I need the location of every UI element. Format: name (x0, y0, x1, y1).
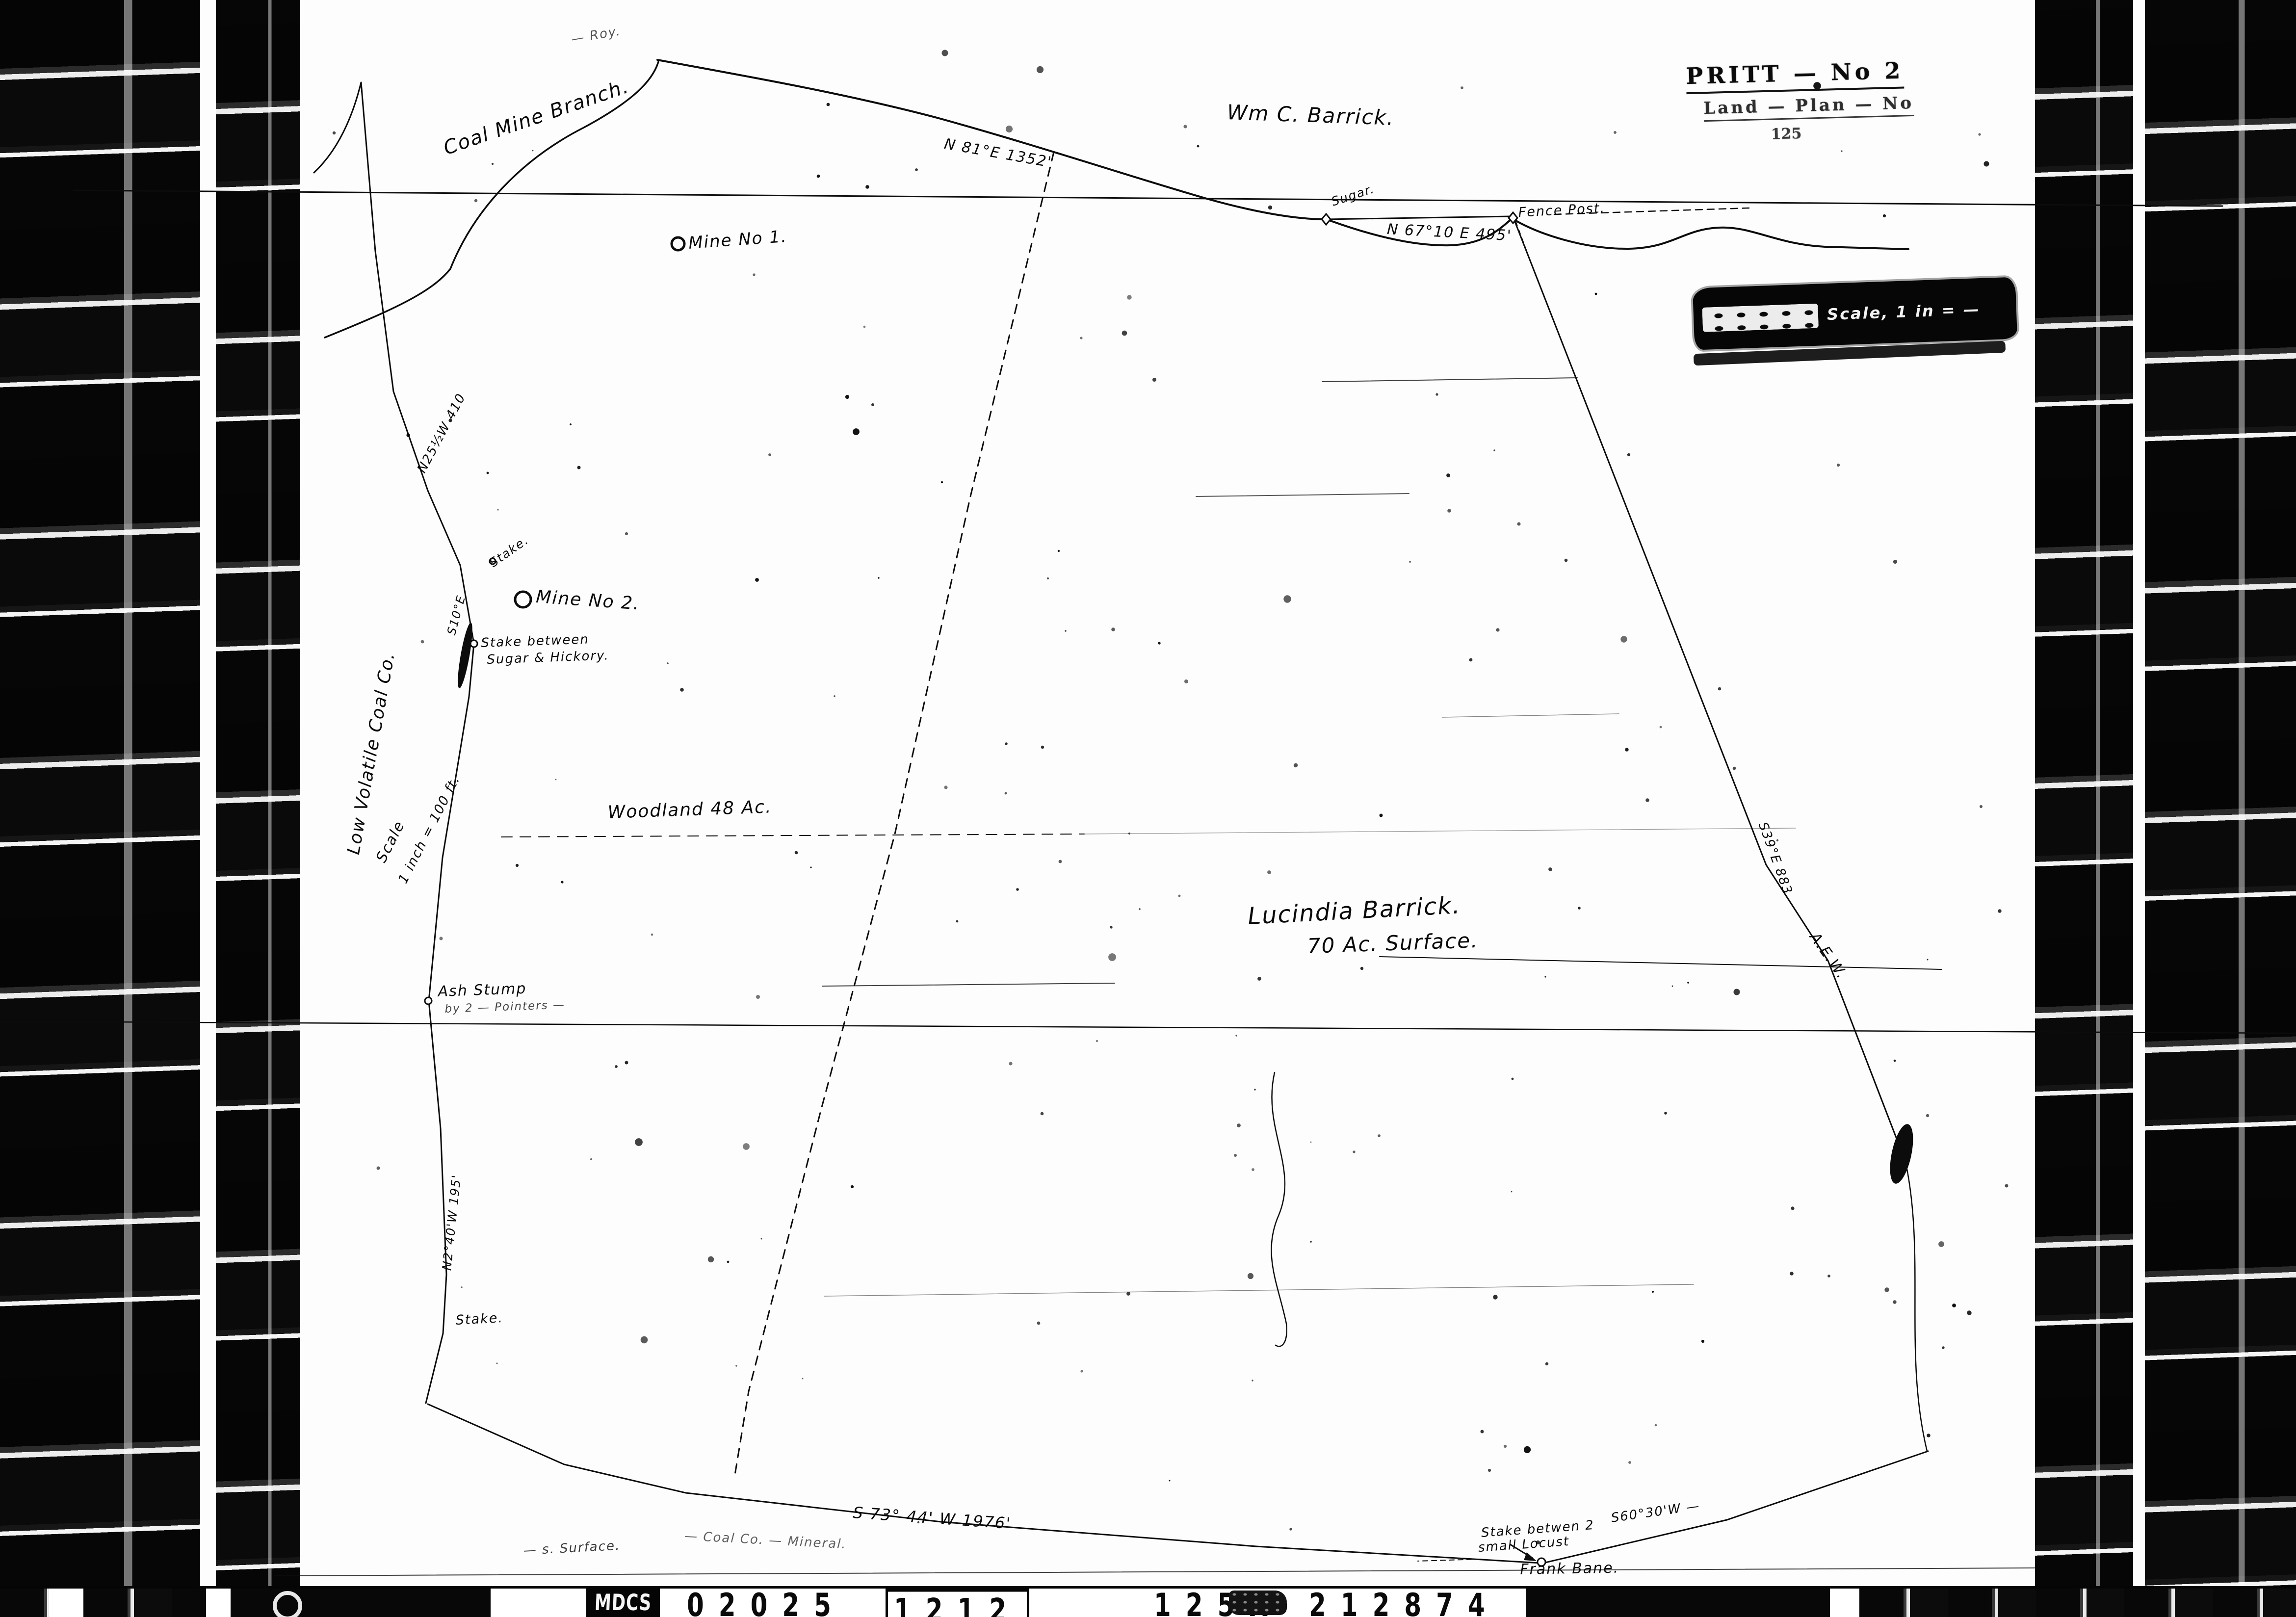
label-woodland-acreage: Woodland 48 Ac. (607, 797, 772, 823)
label-stake-on-line: Stake. (487, 533, 531, 570)
label-n67-bearing: N 67°10 E 495' (1386, 221, 1512, 244)
scale-stamp: Scale, 1 in = — (1693, 277, 2017, 350)
code-group-1: 02025 (687, 1587, 846, 1617)
code-group-4: 212874 (1309, 1587, 1500, 1617)
label-stake-between-2: Sugar & Hickory. (487, 648, 609, 667)
film-block (0, 1589, 49, 1617)
ink-smudge (1229, 1591, 1287, 1615)
label-s39e-bearing: S39°E 883 (1755, 820, 1795, 897)
map-labels-layer: — Roy.Coal Mine Branch.Wm C. Barrick.Sug… (0, 0, 2296, 1617)
microfilm-code-band: MDCS 02025 1212 125X 212874 (0, 1586, 2296, 1617)
label-s10e-bearing: S10°E (444, 594, 469, 636)
label-s7344-bearing: S 73° 44' W 1976' (852, 1503, 1012, 1533)
label-mine-no-2: Mine No 2. (535, 587, 641, 614)
scale-bar-dots (1702, 304, 1819, 332)
mdcs-stamp: MDCS (586, 1589, 660, 1617)
film-block (83, 1589, 206, 1617)
label-sugar-tree: Sugar. (1330, 182, 1376, 209)
label-mineral-note: — Coal Co. — Mineral. (684, 1529, 847, 1552)
label-lucindia-barrick: Lucindia Barrick. (1247, 891, 1461, 930)
label-lucindia-acreage: 70 Ac. Surface. (1307, 928, 1479, 958)
code-group-2: 1212 (886, 1589, 1029, 1617)
label-n81-bearing: N 81°E 1352' (943, 135, 1053, 171)
map-subtitle: Land — Plan — No (1703, 93, 1914, 122)
label-n25-bearing: N25½W 410 (415, 391, 469, 475)
label-frank-bane: Frank Bane. (1520, 1559, 1619, 1578)
mdcs-label: MDCS (594, 1590, 652, 1616)
label-fence-post: Fence Post. (1518, 201, 1606, 220)
label-roy-scribble: — Roy. (570, 24, 622, 47)
label-stake-lower: Stake. (455, 1310, 504, 1328)
film-block (231, 1589, 491, 1617)
label-surface-note: — s. Surface. (523, 1539, 621, 1558)
label-coal-mine-branch: Coal Mine Branch. (441, 75, 632, 160)
label-wm-c-barrick: Wm C. Barrick. (1226, 100, 1395, 130)
film-ring-mark (273, 1591, 302, 1617)
label-s6030-bearing: S60°30'W — (1610, 1499, 1701, 1526)
map-title: PRITT — No 2 (1686, 57, 1904, 94)
label-n240-bearing: N2°40'W 195' (440, 1174, 464, 1271)
scanned-map-sheet: — Roy.Coal Mine Branch.Wm C. Barrick.Sug… (0, 0, 2296, 1617)
label-ash-stump: Ash Stump (438, 980, 527, 1000)
title-block: PRITT — No 2 Land — Plan — No 125 (1686, 57, 1915, 145)
scale-stamp-text: Scale, 1 in = — (1826, 300, 1981, 324)
film-block (1526, 1589, 1830, 1617)
label-aew-initials: A.E.W. (1806, 929, 1851, 982)
label-stake-between-1: Stake between (481, 632, 589, 651)
label-mine-no-1: Mine No 1. (688, 227, 788, 253)
label-scale-hand-1: Scale (373, 818, 408, 865)
label-ash-stump-pointers: by 2 — Pointers — (444, 998, 565, 1016)
map-title-number: 125 (1771, 125, 1802, 143)
film-block (1859, 1589, 2296, 1617)
